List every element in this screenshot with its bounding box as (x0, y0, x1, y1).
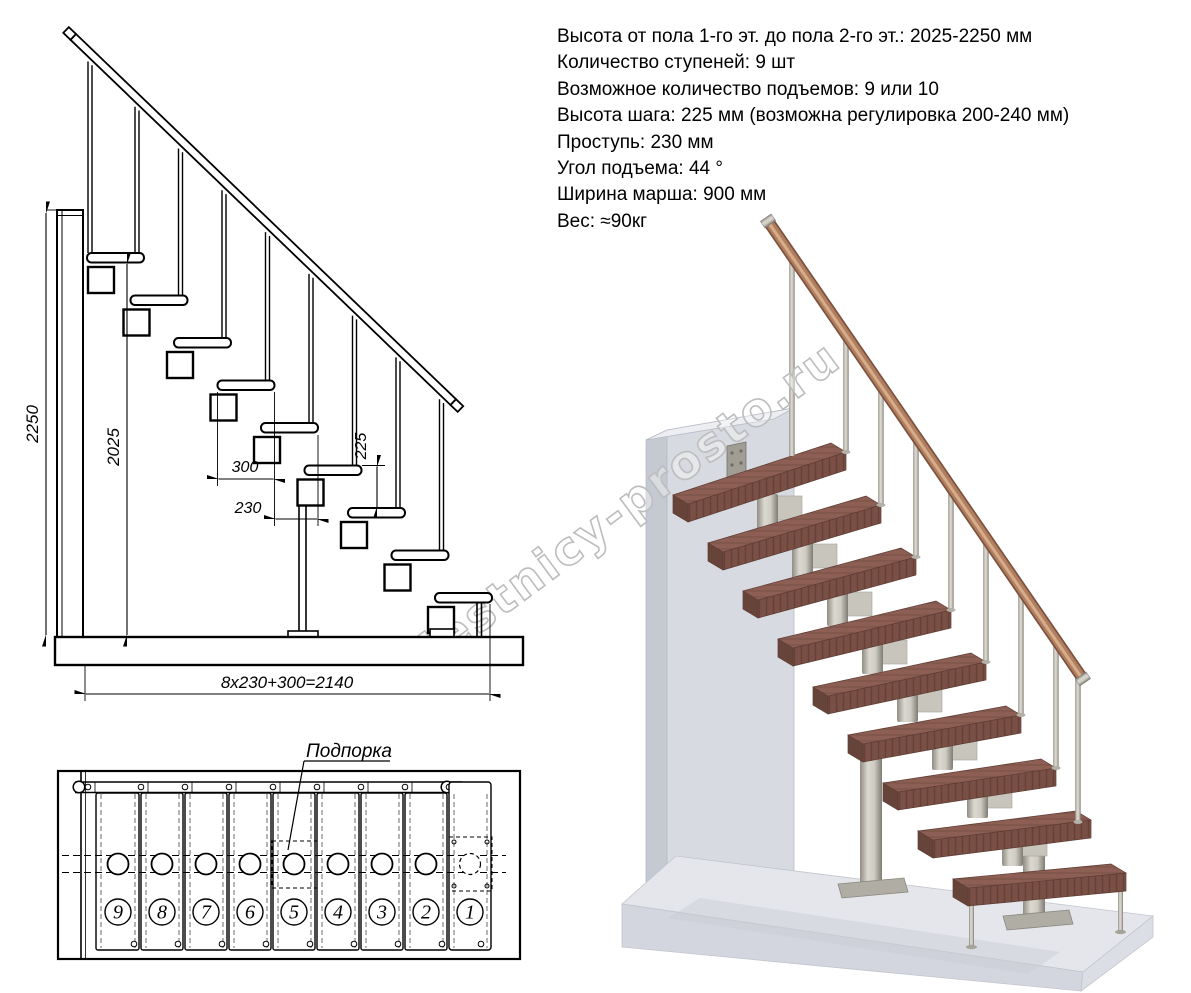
plan-step-1-circle-hidden (460, 854, 481, 875)
spec-line-angle: Угол подъема: 44 ° (557, 156, 1157, 182)
spec-line-step-count: Количество ступеней: 9 шт (557, 50, 1157, 76)
plan-step-number-1: 1 (465, 902, 475, 924)
plan-support-label: Подпорка (306, 741, 392, 762)
plan-wall-edge (81, 771, 86, 959)
spec-line-height: Высота от пола 1-го эт. до пола 2-го эт.… (557, 24, 1157, 50)
plan-post-circles (108, 854, 481, 875)
plan-railing (73, 781, 462, 793)
plan-step-number-6: 6 (245, 902, 255, 924)
spec-line-rise-count: Возможное количество подъемов: 9 или 10 (557, 77, 1157, 103)
spec-text-block: Высота от пола 1-го эт. до пола 2-го эт.… (557, 24, 1157, 235)
plan-step-number-8: 8 (157, 902, 167, 924)
plan-step-number-5: 5 (289, 902, 299, 924)
spec-line-weight: Вес: ≈90кг (557, 209, 1157, 235)
plan-step-number-3: 3 (376, 902, 387, 924)
plan-step-number-2: 2 (421, 902, 431, 924)
spec-line-going: Проступь: 230 мм (557, 130, 1157, 156)
spec-line-width: Ширина марша: 900 мм (557, 182, 1157, 208)
plan-step-number-4: 4 (333, 902, 343, 924)
plan-step-number-9: 9 (113, 902, 123, 924)
drawing-sheet: lestnicy-prosto.ru (0, 0, 1191, 993)
plan-railing-clips (85, 782, 452, 794)
plan-step-number-7: 7 (201, 902, 212, 924)
spec-line-step-height: Высота шага: 225 мм (возможна регулировк… (557, 103, 1157, 129)
